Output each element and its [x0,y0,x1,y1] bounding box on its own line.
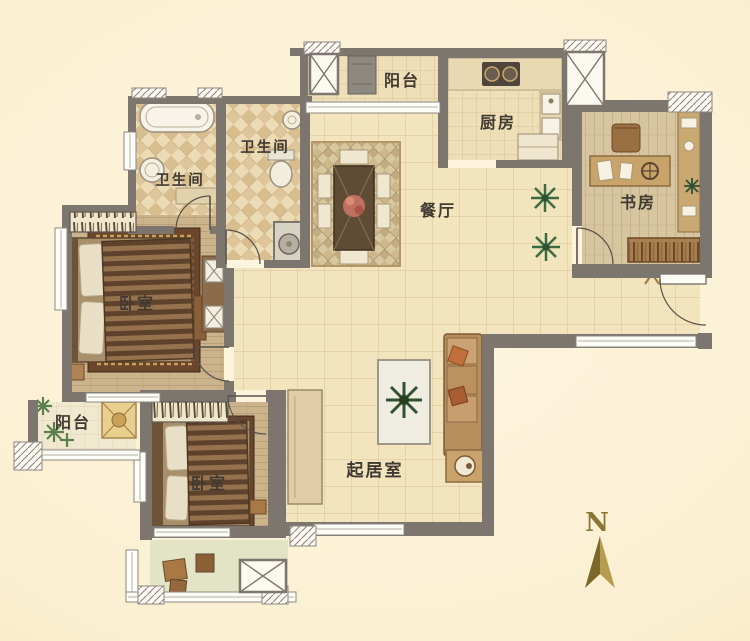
wall [482,334,494,526]
window [576,336,696,347]
label-living-room: 起居室 [346,460,404,481]
label-balcony-top: 阳台 [384,71,420,90]
dining-chair [377,204,390,228]
label-bedroom-second: 卧室 [191,474,227,493]
wall [572,108,582,226]
cabinet-item [681,118,697,128]
label-bedroom-master: 卧室 [119,294,155,313]
compass-arrow-light [600,536,615,588]
balcony-railing [28,450,140,460]
hatch-column [564,40,606,52]
dining-set [312,142,400,266]
stool [250,500,266,514]
plant-icon [531,184,559,212]
sliding-door [154,528,230,537]
wardrobe-master [70,212,136,232]
label-bathroom-left: 卫生间 [155,171,205,189]
lamp-detail [466,463,472,469]
wall [216,260,226,268]
window [314,524,404,535]
sliding-door [86,393,160,402]
window [124,132,136,170]
window [55,228,67,310]
faucet [549,99,554,104]
floor-plan-drawing: 阳台 厨房 卫生间 卫生间 餐厅 书房 卧室 阳台 卧室 起居室 N [0,0,750,641]
dining-chair [377,174,390,198]
bookshelf [628,238,700,262]
compass-arrow-dark [585,536,600,588]
hatch-column [290,526,316,546]
plant-icon [532,233,560,261]
wall [438,48,574,58]
burner [503,67,517,81]
hatch-column [14,442,42,470]
label-balcony-left: 阳台 [55,413,91,432]
utility-box [348,56,376,94]
wall [300,96,310,268]
flower [346,197,355,206]
washer-door [286,241,292,247]
compass: N [585,508,615,588]
dining-chair [318,174,331,198]
table-flowers [343,195,365,217]
vanity [176,188,218,204]
toilet-bowl [270,161,292,187]
drain [195,114,201,120]
balcony-railing [126,550,138,596]
wall [224,268,234,347]
shaft-box [240,560,286,592]
tablet [619,162,633,179]
label-study: 书房 [620,193,656,212]
flower [355,206,364,215]
wall [266,390,286,402]
bedroom-second-furniture [146,416,266,530]
wall [700,92,712,276]
cabinet-item [684,141,694,151]
label-dining-room: 餐厅 [419,201,456,220]
hatch-column [138,586,164,604]
table-center [112,413,126,427]
pillow [79,301,106,354]
dining-chair [340,150,368,164]
burner [485,67,499,81]
compass-north-label: N [585,508,609,538]
wardrobe-second [152,402,228,422]
label-bathroom-right: 卫生间 [240,138,290,156]
shaft-box [310,54,338,94]
small-plant-icon [684,178,700,194]
pillow [165,425,189,470]
coffee-table-plant-icon [386,382,422,418]
shaft-box [566,52,604,106]
hatch-window [198,88,222,98]
kitchen-sink [542,94,560,114]
throw-pillow [448,386,468,406]
floor-plan: 阳台 厨房 卫生间 卫生间 餐厅 书房 卧室 阳台 卧室 起居室 N [0,0,750,641]
pillow [79,243,106,296]
wall [216,104,226,266]
wall [264,260,310,268]
basin [283,111,301,129]
wall [496,160,572,168]
wall [300,48,308,106]
stool [163,559,188,582]
tv-console [288,390,322,504]
pillow [165,475,189,520]
wall [210,226,224,234]
duvet [187,421,250,525]
dining-chair [318,204,331,228]
cabinet-item [682,206,696,216]
hatch-column [304,42,340,54]
dining-chair [340,250,368,264]
hatch-column [668,92,712,112]
sliding-door [306,102,440,113]
papers [597,160,614,181]
hatch-window [132,88,166,98]
stool [196,554,214,572]
label-kitchen: 厨房 [480,113,516,132]
wall [268,390,286,536]
